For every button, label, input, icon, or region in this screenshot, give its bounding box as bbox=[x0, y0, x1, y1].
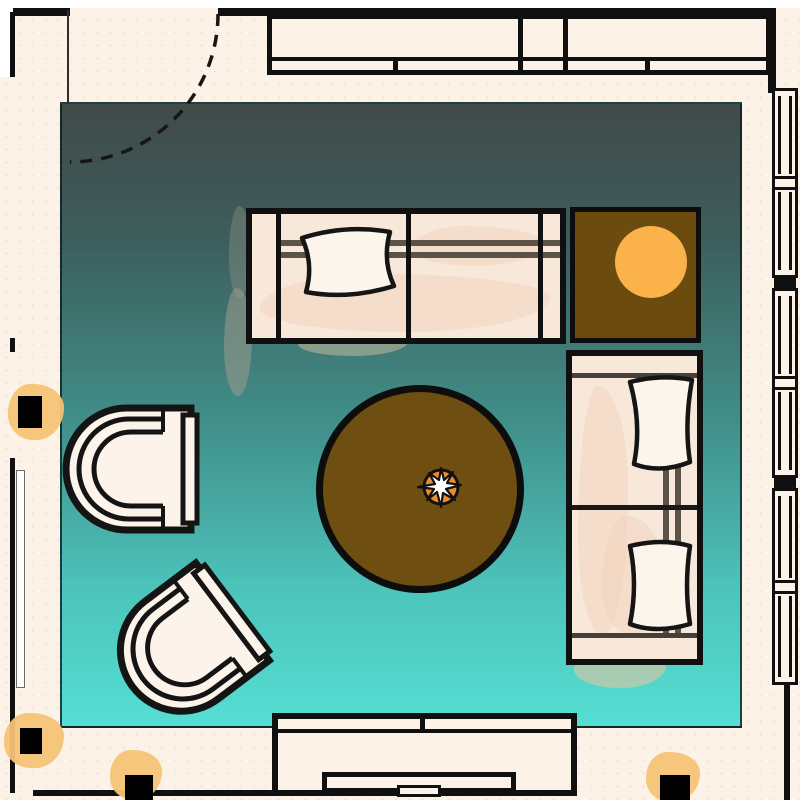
window-pane bbox=[778, 596, 792, 678]
sofa-horizontal[interactable] bbox=[246, 208, 566, 344]
sofa-cushion-divider bbox=[572, 505, 697, 510]
cabinet-front-divider bbox=[645, 57, 650, 70]
console-bracket bbox=[397, 785, 441, 797]
door-leaf[interactable] bbox=[67, 10, 69, 104]
wall-cabinet[interactable] bbox=[267, 14, 771, 75]
wall-left-middle bbox=[10, 338, 15, 352]
table-lamp[interactable] bbox=[615, 226, 687, 298]
cabinet-divider bbox=[518, 19, 523, 70]
exterior-area-top bbox=[0, 0, 800, 8]
window-unit bbox=[772, 288, 798, 478]
window-pane bbox=[778, 296, 792, 374]
wall-right-lower bbox=[784, 685, 790, 800]
console-top-divider bbox=[420, 719, 425, 733]
window-separator bbox=[774, 278, 796, 288]
throw-pillow[interactable] bbox=[622, 372, 700, 478]
sofa-cushion-divider bbox=[406, 214, 411, 338]
window-pane bbox=[778, 96, 792, 174]
window-unit bbox=[772, 88, 798, 278]
floor-plan-canvas bbox=[0, 0, 800, 800]
wall-sconce[interactable] bbox=[125, 775, 153, 800]
window-separator bbox=[774, 478, 796, 488]
left-wall-ledge bbox=[16, 470, 25, 688]
media-console[interactable] bbox=[272, 713, 577, 796]
sofa-vertical[interactable] bbox=[566, 350, 703, 665]
sofa-arm-divider bbox=[276, 214, 281, 338]
wall-left-upper bbox=[10, 12, 15, 77]
throw-pillow[interactable] bbox=[620, 536, 698, 638]
window-pane bbox=[778, 392, 792, 470]
window-strip-right bbox=[772, 88, 798, 685]
round-rug[interactable] bbox=[316, 385, 524, 593]
throw-pillow[interactable] bbox=[294, 220, 404, 304]
cabinet-divider bbox=[563, 19, 568, 70]
window-unit bbox=[772, 488, 798, 685]
sofa-arm-divider bbox=[538, 214, 543, 338]
wall-sconce[interactable] bbox=[20, 728, 42, 754]
window-mullion bbox=[775, 376, 795, 390]
side-table[interactable] bbox=[570, 207, 701, 343]
window-mullion bbox=[775, 176, 795, 190]
cabinet-front-divider bbox=[393, 57, 398, 70]
sofa-wash bbox=[412, 226, 542, 266]
window-pane bbox=[778, 496, 792, 578]
wall-sconce[interactable] bbox=[18, 396, 42, 428]
wall-top-left-segment bbox=[13, 8, 70, 16]
wall-sconce[interactable] bbox=[660, 775, 690, 800]
window-pane bbox=[778, 192, 792, 270]
window-mullion bbox=[775, 580, 795, 594]
